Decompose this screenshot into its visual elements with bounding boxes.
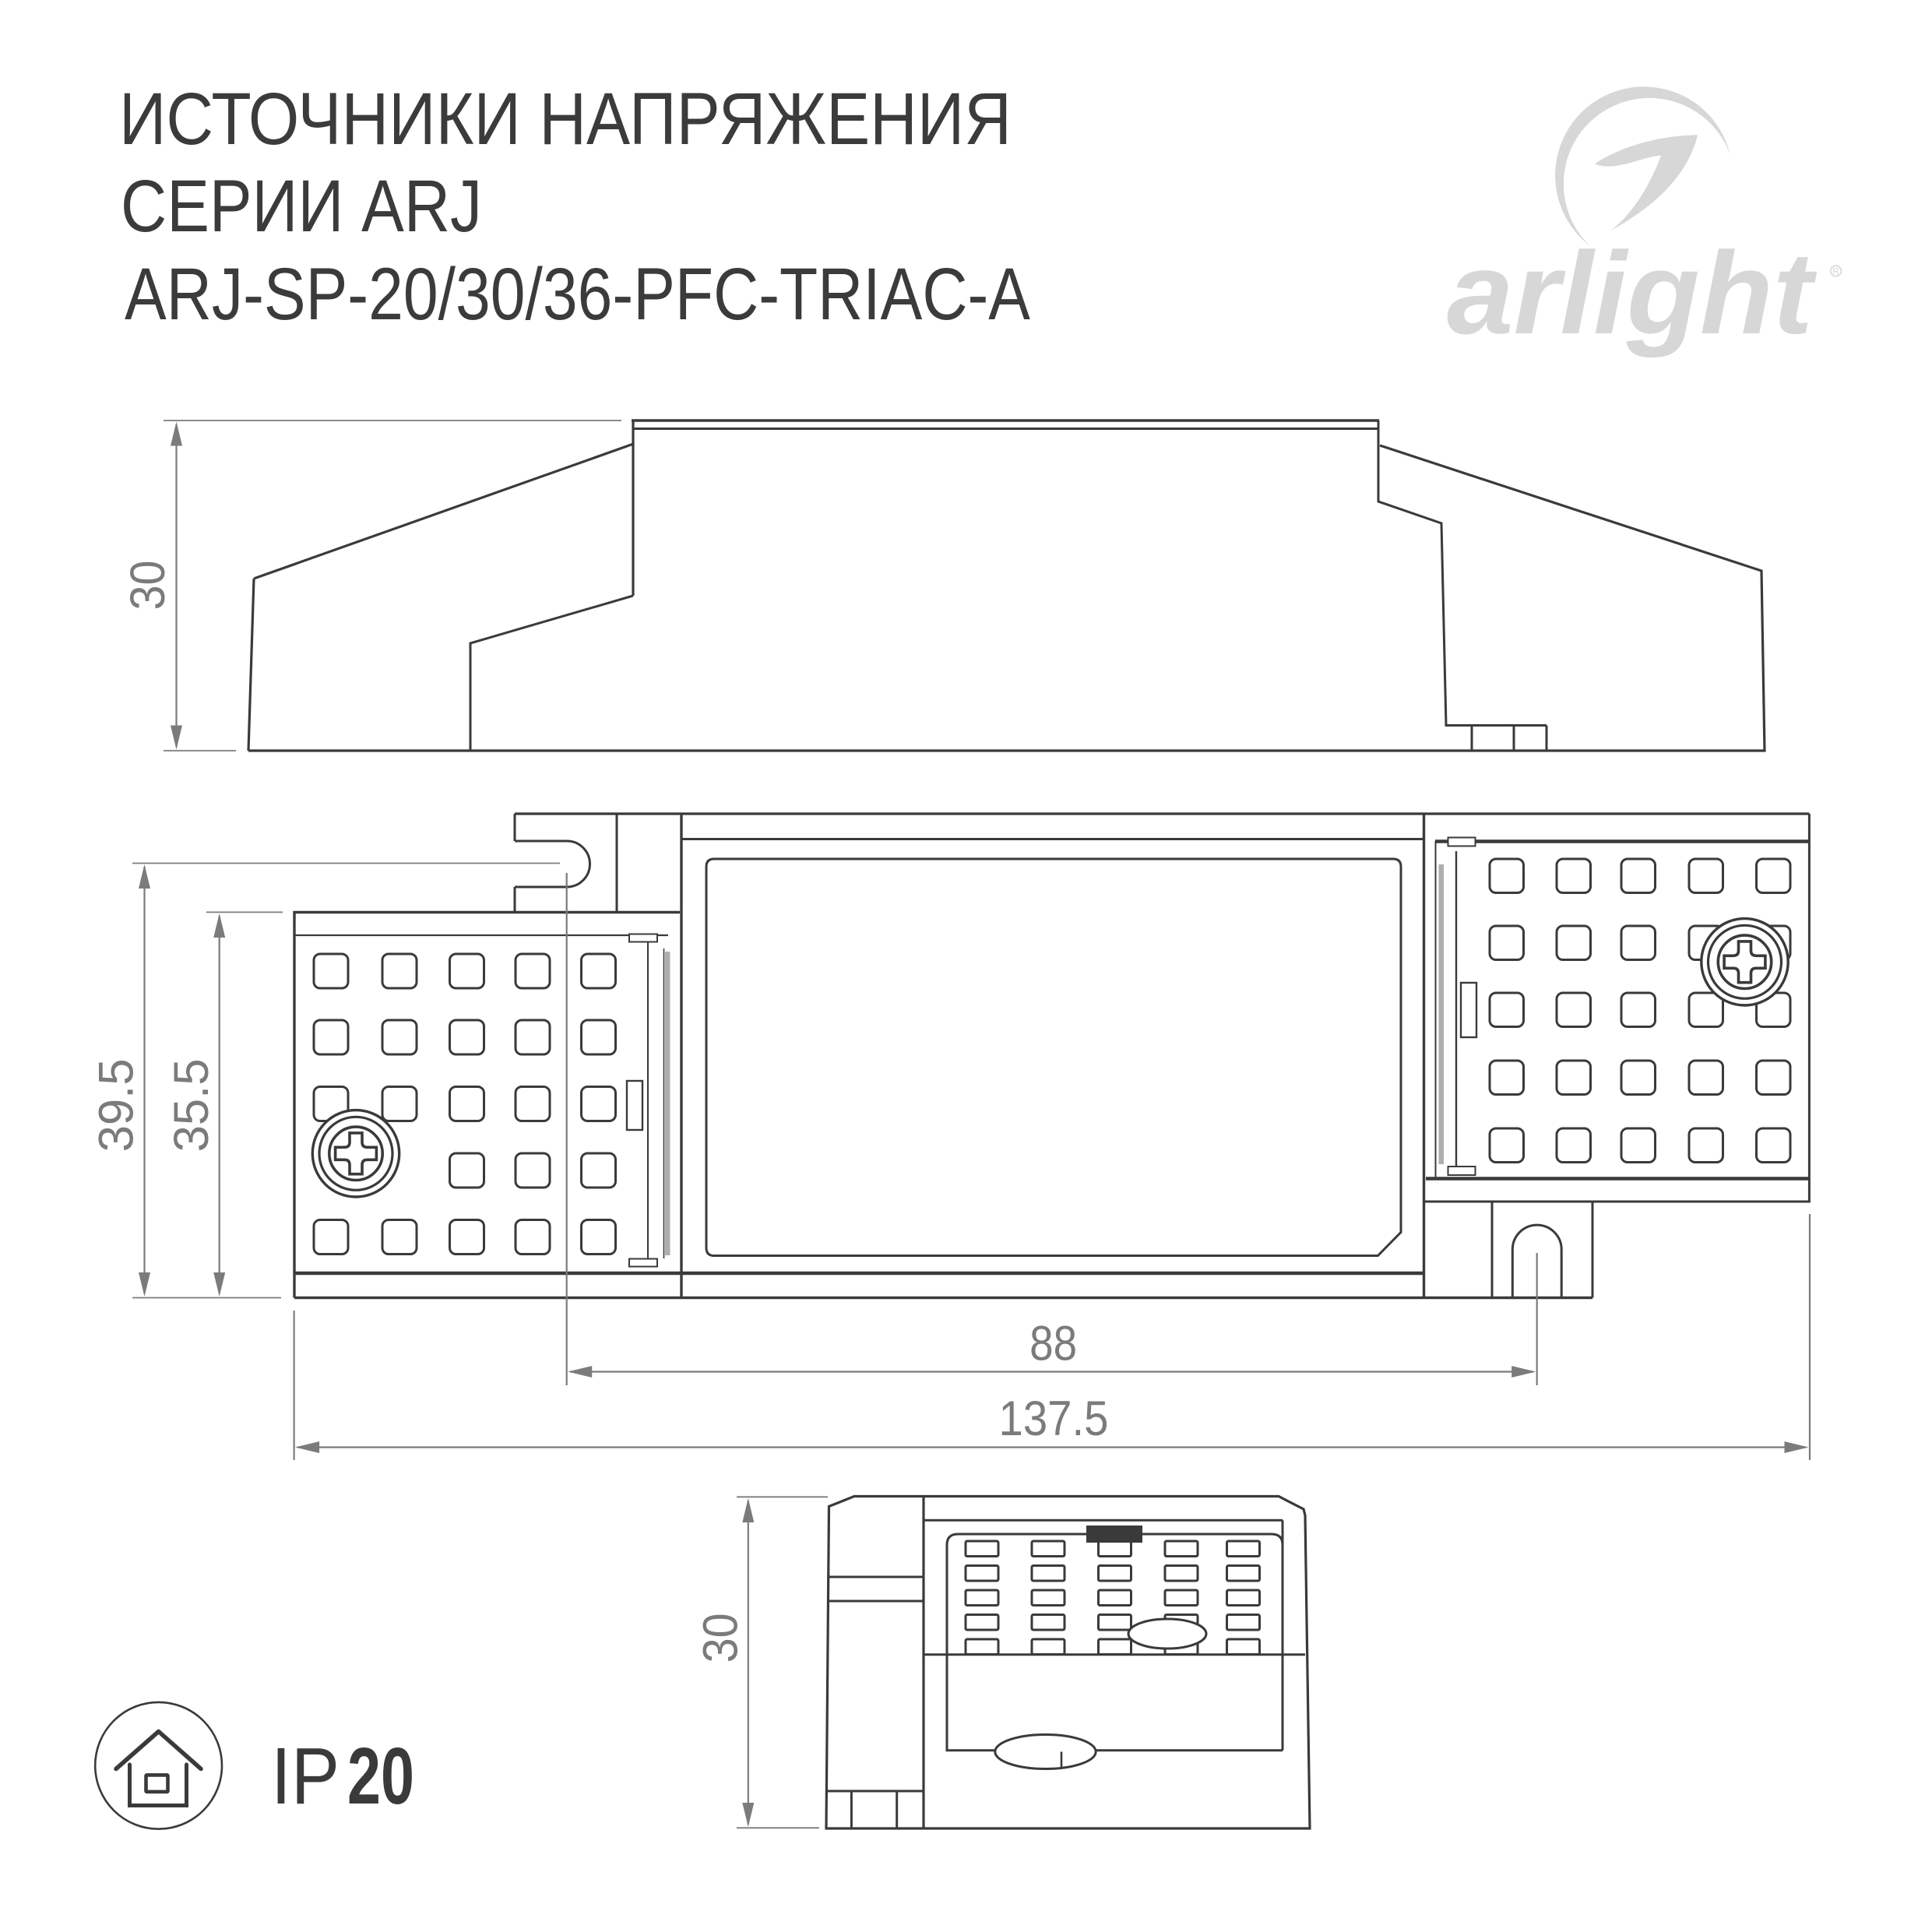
svg-text:88: 88 [1029, 1317, 1077, 1371]
svg-text:ARJ-SP-20/30/36-PFC-TRIAC-A: ARJ-SP-20/30/36-PFC-TRIAC-A [125, 253, 1031, 336]
svg-text:IP: IP [271, 1731, 340, 1821]
svg-text:СЕРИИ ARJ: СЕРИИ ARJ [121, 165, 482, 248]
svg-text:30: 30 [121, 561, 175, 611]
svg-text:R: R [1832, 266, 1839, 276]
svg-text:ИСТОЧНИКИ НАПРЯЖЕНИЯ: ИСТОЧНИКИ НАПРЯЖЕНИЯ [119, 78, 1012, 160]
svg-text:20: 20 [347, 1731, 414, 1821]
svg-text:35.5: 35.5 [164, 1058, 219, 1152]
svg-text:137.5: 137.5 [999, 1392, 1109, 1446]
svg-text:39.5: 39.5 [90, 1058, 144, 1152]
svg-text:arlight: arlight [1447, 227, 1818, 358]
svg-text:30: 30 [694, 1613, 748, 1663]
